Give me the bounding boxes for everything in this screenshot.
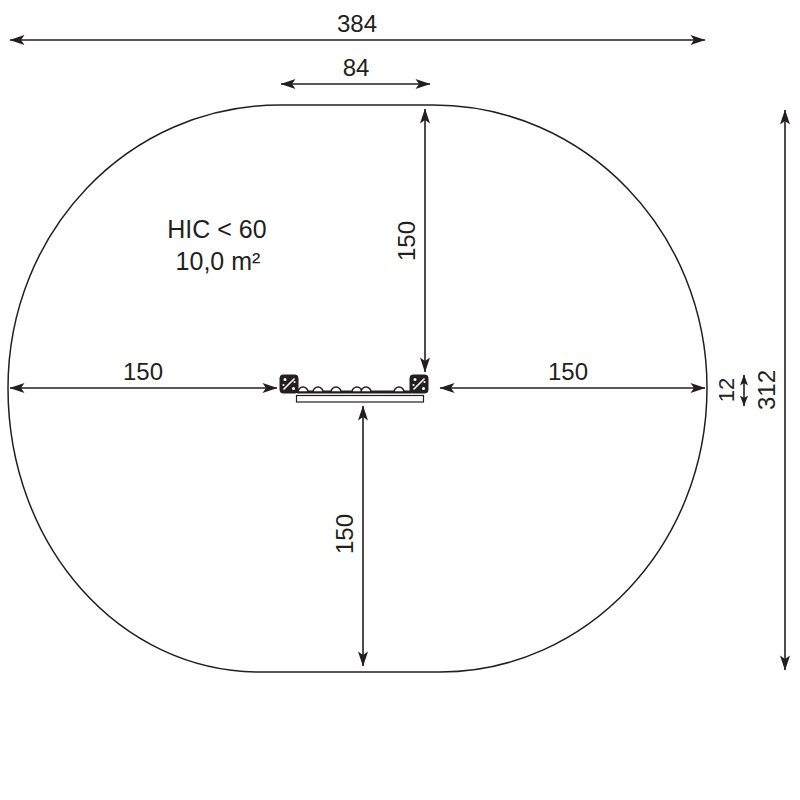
dim-clearance-bottom: 150 [331, 406, 363, 666]
hic-note: HIC < 60 [167, 215, 266, 243]
post-left [280, 375, 298, 393]
dim-overall-height-label: 312 [753, 370, 780, 410]
beam-bump [313, 387, 323, 392]
post-dot [282, 384, 284, 386]
post-dot [412, 384, 414, 386]
area-note: 10,0 m² [176, 247, 261, 275]
dim-overall-height: 312 [753, 110, 785, 670]
dim-beam-depth: 12 [714, 375, 744, 406]
beam-lower-bar [297, 396, 424, 403]
post-dot [293, 381, 295, 383]
dim-clearance-bottom-label: 150 [331, 514, 358, 554]
post-dot [284, 378, 287, 381]
dim-overall-width-label: 384 [337, 10, 377, 37]
dim-clearance-left: 150 [10, 358, 277, 388]
safety-zone-diagram: 384 84 150 150 150 150 12 312 HIC < 60 1… [0, 0, 800, 800]
technical-drawing-canvas: 384 84 150 150 150 150 12 312 HIC < 60 1… [0, 0, 800, 800]
dim-clearance-left-label: 150 [123, 358, 163, 385]
balance-beam-plan [280, 375, 428, 402]
dim-clearance-right-label: 150 [548, 358, 588, 385]
dim-top-flat-width: 84 [281, 54, 430, 84]
post-right [410, 375, 428, 393]
post-dot [422, 387, 425, 390]
beam-bump [298, 387, 308, 392]
dim-clearance-top: 150 [393, 109, 425, 372]
post-dot [423, 381, 425, 383]
dim-top-flat-width-label: 84 [343, 54, 370, 81]
dim-clearance-top-label: 150 [393, 221, 420, 261]
post-dot [414, 378, 417, 381]
beam-bump [394, 387, 404, 392]
post-dot [292, 387, 295, 390]
dim-overall-width: 384 [10, 10, 705, 40]
zone-notes: HIC < 60 10,0 m² [167, 215, 266, 275]
beam-bump [331, 387, 341, 392]
dim-beam-depth-label: 12 [714, 378, 739, 402]
beam-bump [361, 387, 371, 392]
dim-clearance-right: 150 [440, 358, 705, 388]
